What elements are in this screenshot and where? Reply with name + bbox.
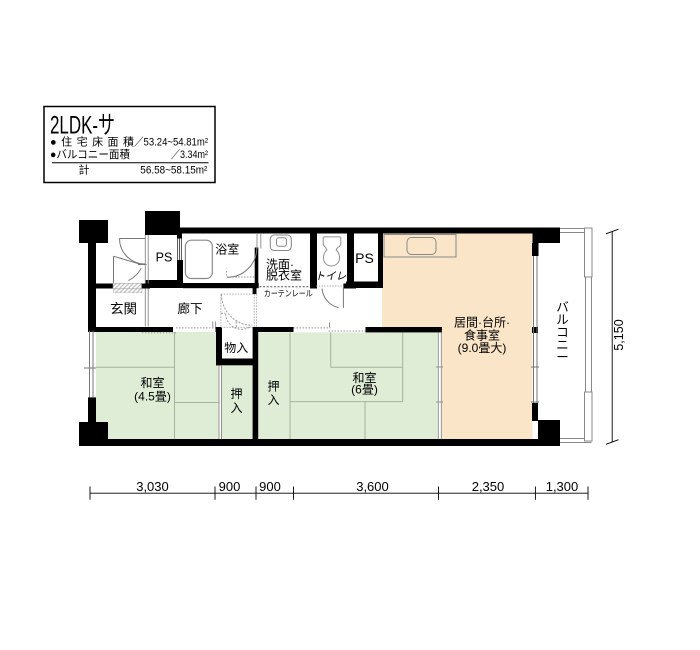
svg-text:計: 計 <box>79 162 90 176</box>
svg-text:PS: PS <box>355 250 374 266</box>
svg-text:●バルコニー面積: ●バルコニー面積 <box>50 147 130 161</box>
svg-text:2,350: 2,350 <box>472 479 505 494</box>
svg-text:(6畳): (6畳) <box>351 383 378 397</box>
svg-text:(9.0畳大): (9.0畳大) <box>458 341 507 355</box>
svg-text:トイレ: トイレ <box>315 271 347 283</box>
svg-text:56.58~58.15m²: 56.58~58.15m² <box>140 164 207 176</box>
svg-text:入: 入 <box>267 393 279 407</box>
svg-text:物入: 物入 <box>224 341 248 355</box>
svg-text:押: 押 <box>267 380 279 394</box>
svg-text:脱衣室: 脱衣室 <box>266 268 302 283</box>
svg-text:押: 押 <box>230 387 242 401</box>
svg-text:1,300: 1,300 <box>546 479 579 494</box>
svg-text:入: 入 <box>230 401 242 415</box>
svg-text:3,600: 3,600 <box>356 479 389 494</box>
svg-text:900: 900 <box>219 479 241 494</box>
svg-text:／3.34m²: ／3.34m² <box>171 148 208 161</box>
svg-text:浴室: 浴室 <box>215 242 239 257</box>
svg-text:玄関: 玄関 <box>110 301 137 317</box>
svg-text:(4.5畳): (4.5畳) <box>134 390 171 404</box>
svg-text:5,150: 5,150 <box>612 319 626 350</box>
svg-text:居間·台所·: 居間·台所· <box>454 315 510 330</box>
svg-text:ー: ー <box>556 351 569 365</box>
svg-text:PS: PS <box>156 251 173 265</box>
svg-text:2LDK-サ: 2LDK-サ <box>50 112 115 140</box>
svg-text:カーテンレール: カーテンレール <box>264 289 313 299</box>
svg-text:／53.24~54.81m²: ／53.24~54.81m² <box>134 135 208 148</box>
svg-text:900: 900 <box>259 479 281 494</box>
svg-text:廊下: 廊下 <box>177 301 202 316</box>
svg-text:和室: 和室 <box>140 375 164 390</box>
svg-text:3,030: 3,030 <box>136 479 169 494</box>
